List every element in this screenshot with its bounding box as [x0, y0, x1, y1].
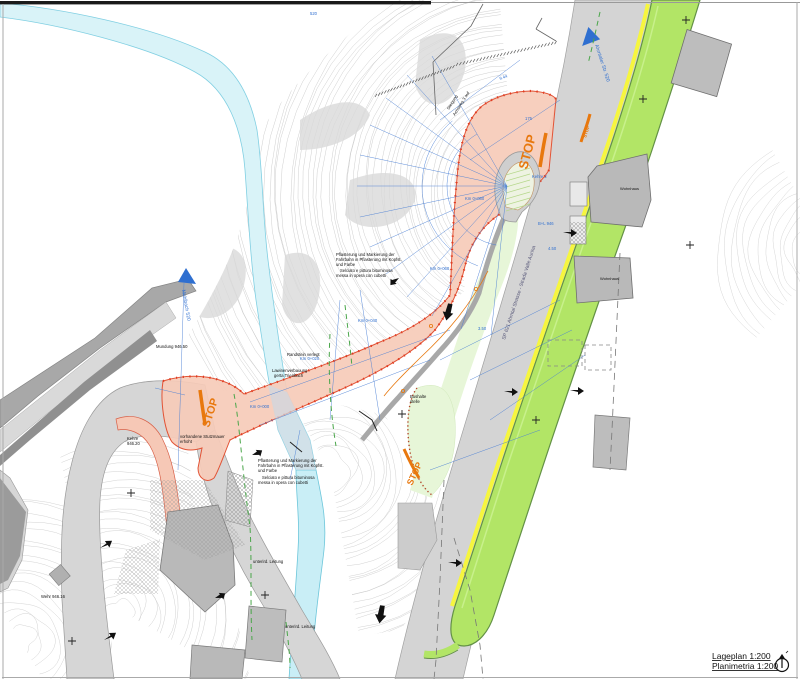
svg-text:Wohnhaus: Wohnhaus	[620, 186, 639, 191]
svg-text:erhoht: erhoht	[180, 439, 193, 444]
svg-text:und Farbe: und Farbe	[336, 262, 356, 267]
svg-text:946.20: 946.20	[127, 441, 140, 446]
svg-text:520: 520	[310, 11, 318, 16]
svg-text:Lageplan 1:200: Lageplan 1:200	[712, 651, 771, 661]
svg-text:Muhlbach 520: Muhlbach 520	[180, 289, 191, 321]
svg-text:175: 175	[525, 116, 533, 121]
svg-text:3.50: 3.50	[478, 326, 487, 331]
svg-text:und Farbe: und Farbe	[258, 468, 278, 473]
svg-text:Mundung 946.50: Mundung 946.50	[156, 344, 188, 349]
svg-text:messa in opera con cubetti: messa in opera con cubetti	[258, 480, 308, 485]
svg-text:Km 0+000: Km 0+000	[250, 404, 270, 409]
svg-text:Km 0+080: Km 0+080	[465, 196, 485, 201]
svg-text:Km 0+020: Km 0+020	[300, 356, 320, 361]
svg-text:stelle: stelle	[410, 399, 420, 404]
svg-text:Planimetria 1:200: Planimetria 1:200	[712, 661, 778, 671]
svg-text:Kehre 2: Kehre 2	[532, 174, 547, 179]
svg-text:B+L 946: B+L 946	[538, 221, 554, 226]
svg-text:9.44: 9.44	[499, 73, 509, 81]
svg-text:gerta Trienbach: gerta Trienbach	[274, 373, 304, 378]
svg-text:Km 0+060: Km 0+060	[430, 266, 450, 271]
svg-text:Km 0+040: Km 0+040	[358, 318, 378, 323]
svg-text:4.50: 4.50	[548, 246, 557, 251]
svg-text:messa in opera con cubetti: messa in opera con cubetti	[336, 273, 386, 278]
svg-text:Wehr 946.16: Wehr 946.16	[41, 594, 66, 599]
svg-text:unterird. Leitung: unterird. Leitung	[253, 559, 284, 564]
svg-text:unterird. Leitung: unterird. Leitung	[285, 624, 316, 629]
svg-text:Achsweg 3 auf: Achsweg 3 auf	[452, 90, 471, 117]
svg-text:Wohnhaus: Wohnhaus	[600, 276, 619, 281]
